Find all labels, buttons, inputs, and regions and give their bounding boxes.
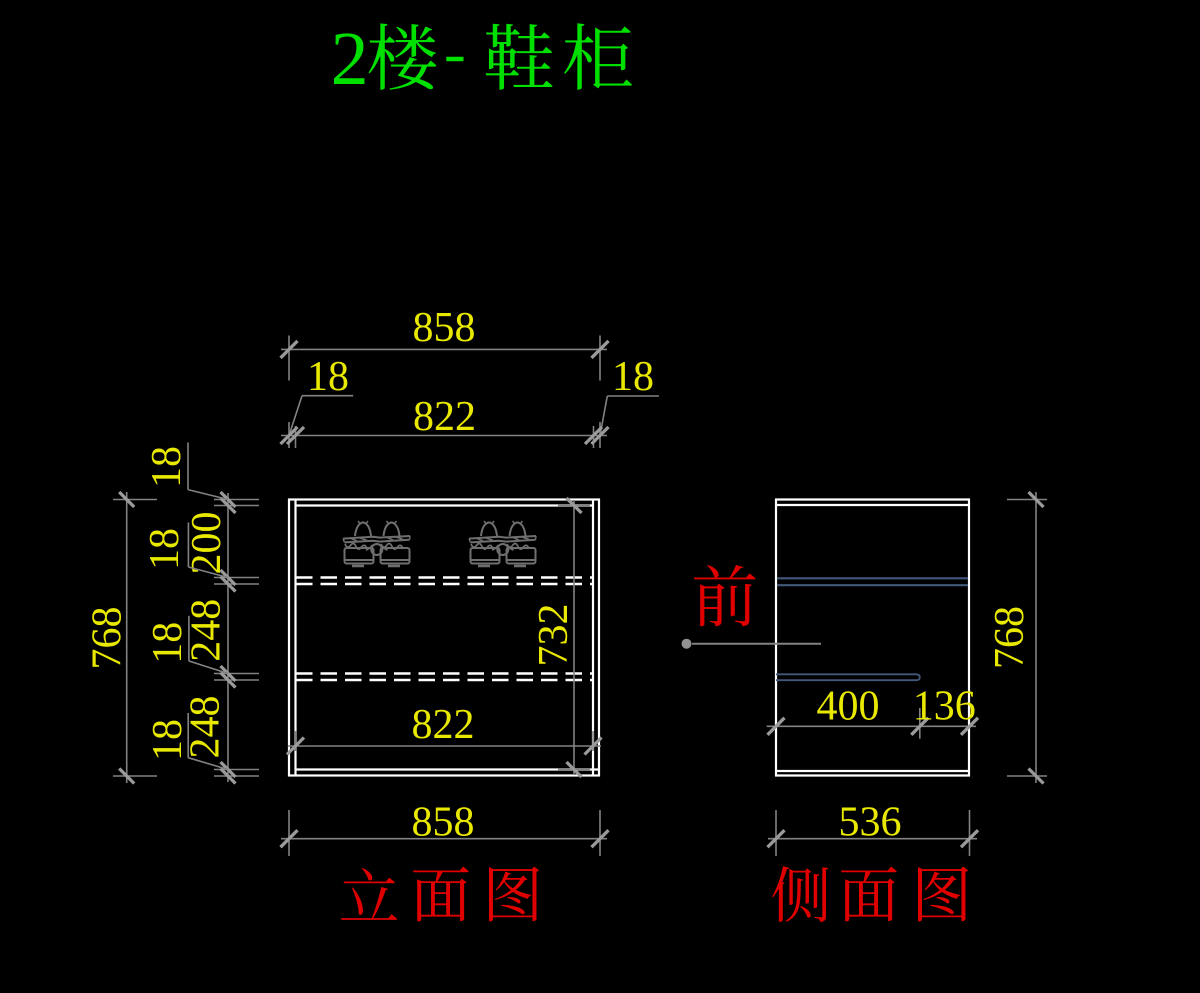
svg-text:18: 18 <box>612 354 654 400</box>
svg-text:732: 732 <box>531 604 577 667</box>
svg-text:136: 136 <box>913 684 976 730</box>
svg-text:18: 18 <box>307 354 349 400</box>
svg-text:2: 2 <box>331 17 369 101</box>
svg-text:858: 858 <box>413 305 476 351</box>
svg-text:400: 400 <box>817 684 880 730</box>
svg-text:822: 822 <box>413 394 476 440</box>
svg-text:18: 18 <box>142 528 188 570</box>
svg-text:768: 768 <box>85 607 131 670</box>
svg-text:18: 18 <box>145 622 191 664</box>
svg-text:200: 200 <box>184 512 230 575</box>
svg-text:768: 768 <box>987 606 1033 669</box>
svg-text:858: 858 <box>412 799 475 845</box>
svg-text:18: 18 <box>144 446 190 488</box>
svg-text:536: 536 <box>839 799 902 845</box>
svg-text:18: 18 <box>145 719 191 761</box>
svg-text:822: 822 <box>412 702 475 748</box>
